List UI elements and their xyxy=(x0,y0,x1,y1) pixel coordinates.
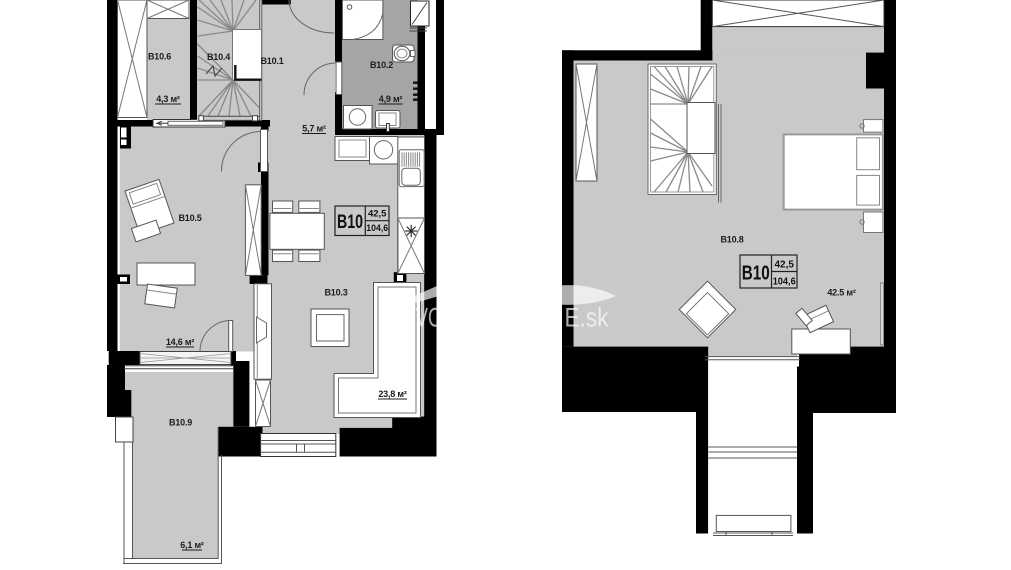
svg-text:B10.3: B10.3 xyxy=(324,287,347,297)
svg-text:42.5 м²: 42.5 м² xyxy=(827,288,855,298)
svg-text:42,5: 42,5 xyxy=(774,260,794,271)
svg-text:42,5: 42,5 xyxy=(368,209,387,220)
svg-text:E.sk: E.sk xyxy=(565,302,609,332)
svg-text:B10: B10 xyxy=(742,263,770,285)
svg-text:6,1 м²: 6,1 м² xyxy=(180,540,204,550)
svg-text:4,3 м²: 4,3 м² xyxy=(156,94,180,104)
svg-text:VO: VO xyxy=(416,302,443,332)
svg-text:23,8 м²: 23,8 м² xyxy=(378,389,406,399)
svg-text:B10.6: B10.6 xyxy=(148,52,171,62)
svg-text:14,6 м²: 14,6 м² xyxy=(166,337,194,347)
svg-text:B10.8: B10.8 xyxy=(720,235,743,245)
svg-text:B10.1: B10.1 xyxy=(260,56,283,66)
svg-text:B10.5: B10.5 xyxy=(178,213,201,223)
svg-text:B10.4: B10.4 xyxy=(207,52,230,62)
svg-text:104,6: 104,6 xyxy=(773,277,796,288)
svg-text:5,7 м²: 5,7 м² xyxy=(302,124,326,134)
svg-text:4,9 м²: 4,9 м² xyxy=(379,94,403,104)
svg-text:B10: B10 xyxy=(337,212,363,233)
svg-text:B10.9: B10.9 xyxy=(169,418,192,428)
svg-text:B10.2: B10.2 xyxy=(370,60,393,70)
svg-text:104,6: 104,6 xyxy=(366,223,388,234)
